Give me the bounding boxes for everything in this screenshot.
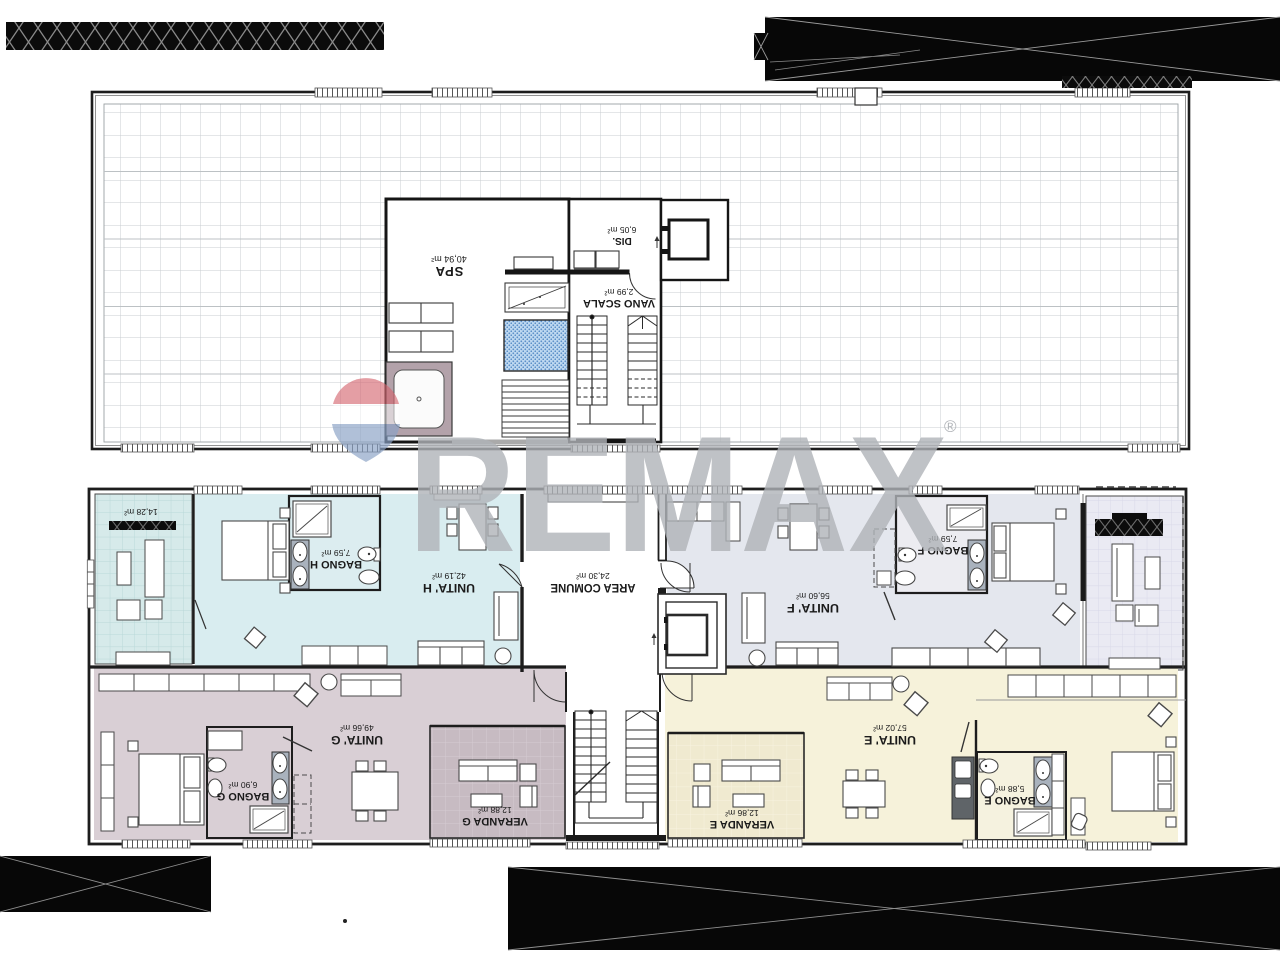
svg-text:UNITA' E: UNITA' E bbox=[864, 733, 916, 745]
svg-text:2,99 m²: 2,99 m² bbox=[604, 287, 633, 297]
svg-text:BAGNO E: BAGNO E bbox=[984, 794, 1035, 806]
svg-text:REMAX: REMAX bbox=[408, 402, 948, 586]
svg-text:UNITA' F: UNITA' F bbox=[787, 601, 839, 613]
svg-text:BAGNO G: BAGNO G bbox=[217, 790, 270, 802]
svg-text:VERANDA G: VERANDA G bbox=[462, 815, 528, 827]
svg-text:57,02 m²: 57,02 m² bbox=[873, 723, 907, 733]
svg-text:VANO SCALA: VANO SCALA bbox=[583, 297, 655, 309]
svg-text:56,60 m²: 56,60 m² bbox=[796, 591, 830, 601]
svg-text:BAGNO H: BAGNO H bbox=[310, 558, 362, 570]
svg-text:VERANDA E: VERANDA E bbox=[710, 818, 774, 830]
svg-text:5,88 m²: 5,88 m² bbox=[995, 784, 1024, 794]
svg-text:DIS.: DIS. bbox=[612, 235, 632, 246]
svg-text:6,05 m²: 6,05 m² bbox=[607, 225, 636, 235]
svg-text:6,90 m²: 6,90 m² bbox=[228, 780, 257, 790]
svg-text:®: ® bbox=[944, 417, 957, 436]
svg-text:40,94 m²: 40,94 m² bbox=[431, 254, 467, 264]
svg-text:SPA: SPA bbox=[435, 264, 464, 279]
svg-text:49,66 m²: 49,66 m² bbox=[340, 723, 374, 733]
svg-text:7,59 m²: 7,59 m² bbox=[321, 548, 350, 558]
svg-text:UNITA' G: UNITA' G bbox=[331, 733, 383, 745]
svg-text:12,86 m²: 12,86 m² bbox=[725, 808, 759, 818]
svg-text:14,28 m²: 14,28 m² bbox=[124, 507, 158, 517]
svg-text:12,88 m²: 12,88 m² bbox=[478, 805, 512, 815]
